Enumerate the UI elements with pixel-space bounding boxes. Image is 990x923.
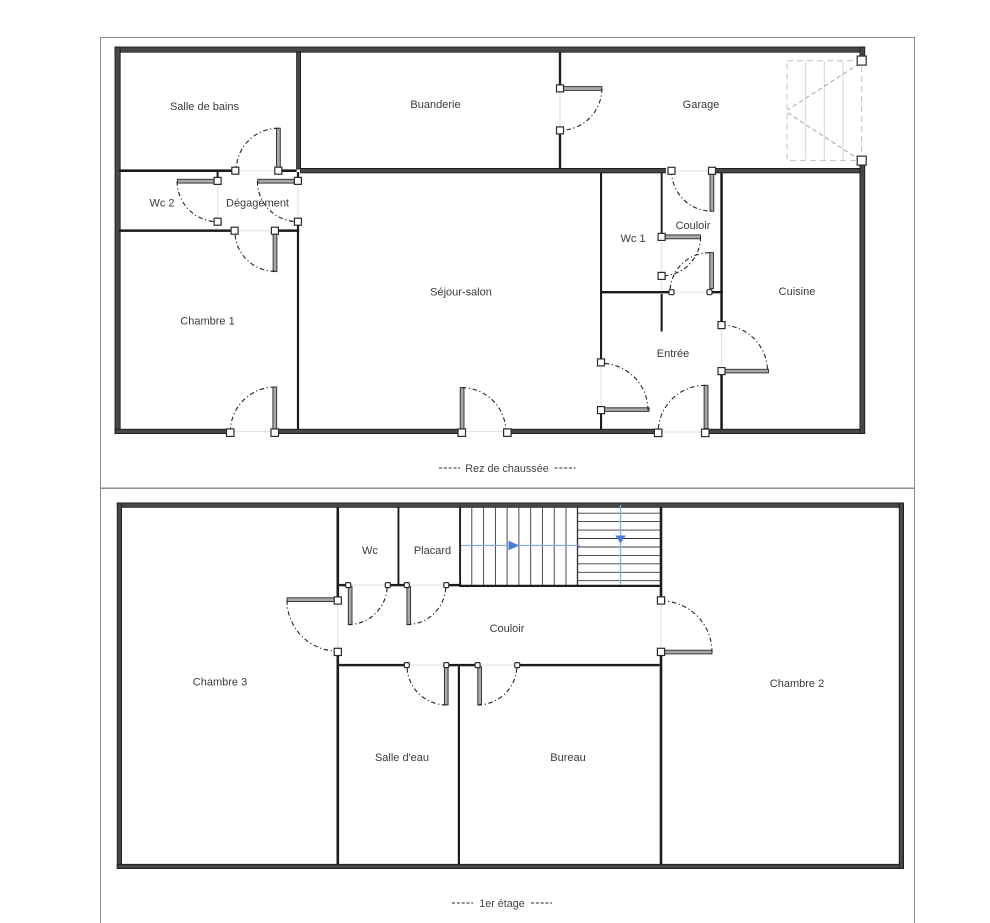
svg-text:Wc: Wc <box>362 545 378 557</box>
svg-text:Entrée: Entrée <box>657 348 689 360</box>
svg-text:1er étage: 1er étage <box>479 898 525 910</box>
svg-text:Wc 1: Wc 1 <box>620 233 645 245</box>
svg-text:Couloir: Couloir <box>676 220 711 232</box>
svg-text:Chambre 3: Chambre 3 <box>193 677 247 689</box>
svg-text:Buanderie: Buanderie <box>410 99 460 111</box>
svg-text:Chambre 2: Chambre 2 <box>770 678 824 690</box>
svg-text:Wc 2: Wc 2 <box>149 198 174 210</box>
svg-text:Salle d'eau: Salle d'eau <box>375 752 429 764</box>
svg-text:Dégagement: Dégagement <box>226 198 289 210</box>
svg-text:Bureau: Bureau <box>550 752 585 764</box>
svg-text:Chambre 1: Chambre 1 <box>180 316 234 328</box>
svg-text:Garage: Garage <box>683 99 720 111</box>
svg-text:Cuisine: Cuisine <box>779 286 816 298</box>
svg-text:Salle de bains: Salle de bains <box>170 101 240 113</box>
svg-text:Rez de chaussée: Rez de chaussée <box>465 463 548 475</box>
svg-text:Couloir: Couloir <box>490 623 525 635</box>
svg-text:Séjour-salon: Séjour-salon <box>430 287 492 299</box>
svg-text:Placard: Placard <box>414 545 451 557</box>
